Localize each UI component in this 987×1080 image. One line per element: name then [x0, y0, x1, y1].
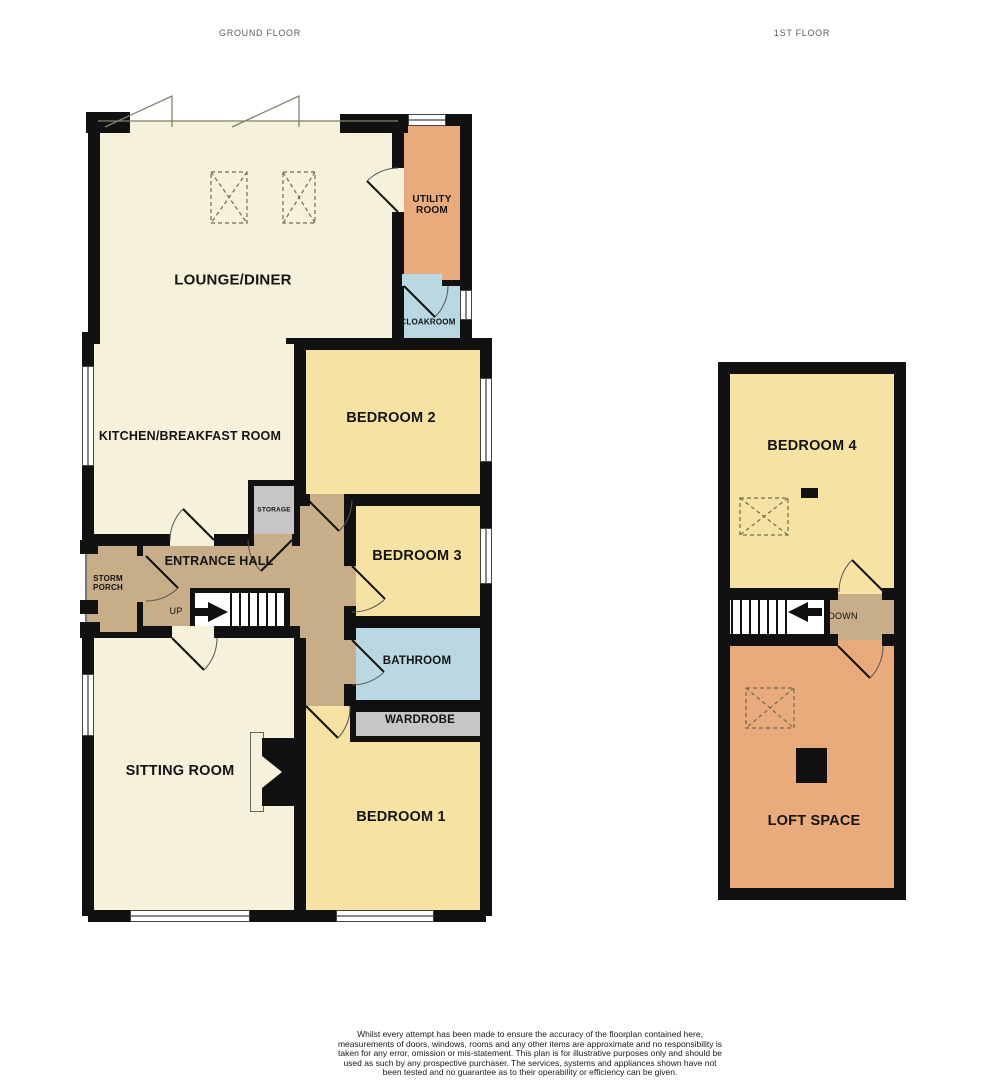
label-bedroom1: BEDROOM 1	[356, 809, 446, 825]
wall-segment	[82, 332, 96, 344]
label-bathroom: BATHROOM	[383, 655, 451, 667]
door-opening	[402, 274, 442, 286]
door-opening	[838, 640, 882, 648]
window	[460, 290, 472, 320]
wall-segment	[340, 114, 408, 133]
door-opening	[172, 626, 214, 638]
wall-segment	[344, 622, 350, 640]
wall-segment	[344, 500, 350, 566]
window	[408, 114, 446, 126]
floorplan: GROUND FLOOR 1ST FLOOR LOUNGE/DINER UTIL…	[0, 0, 987, 1080]
label-entrance-hall: ENTRANCE HALL	[165, 554, 274, 568]
label-utility-room: UTILITY ROOM	[400, 194, 464, 216]
door-opening	[170, 534, 214, 546]
label-bedroom4: BEDROOM 4	[767, 438, 857, 454]
wall-segment	[446, 114, 472, 126]
window	[130, 910, 250, 922]
wall-segment	[300, 638, 306, 700]
label-sitting-room: SITTING ROOM	[126, 763, 235, 779]
label-storage: STORAGE	[257, 507, 290, 514]
disclaimer: Whilst every attempt has been made to en…	[334, 1030, 726, 1080]
wall-segment	[344, 606, 350, 622]
wall-segment	[466, 338, 492, 350]
label-wardrobe: WARDROBE	[385, 714, 455, 726]
wall-corner	[718, 890, 728, 900]
door-opening	[838, 594, 882, 602]
wall-corner	[718, 362, 728, 372]
door-opening	[838, 586, 882, 594]
window	[480, 378, 492, 462]
wall-segment	[300, 500, 310, 506]
label-bedroom3: BEDROOM 3	[372, 548, 462, 564]
ground-floor-title: GROUND FLOOR	[219, 28, 301, 38]
label-lounge-diner: LOUNGE/DINER	[174, 272, 291, 289]
hall-corridor-floor	[300, 632, 350, 700]
room-cloakroom	[398, 280, 466, 344]
fireplace-opening	[262, 756, 282, 788]
label-cloakroom: CLOAKROOM	[400, 318, 455, 327]
door-opening	[137, 556, 149, 602]
label-stairs-up: UP	[170, 606, 183, 616]
wall-corner	[896, 890, 906, 900]
room-bedroom4	[724, 368, 900, 594]
door-opening	[254, 534, 292, 546]
wall-segment	[143, 626, 300, 632]
label-kitchen-breakfast: KITCHEN/BREAKFAST ROOM	[99, 429, 281, 443]
wall-corner	[896, 362, 906, 372]
label-bedroom2: BEDROOM 2	[346, 410, 436, 426]
wall-segment	[80, 622, 100, 638]
door-opening	[306, 694, 344, 706]
first-floor-title: 1ST FLOOR	[774, 28, 830, 38]
label-storm-porch: STORM PORCH	[82, 575, 134, 593]
door-opening	[100, 336, 286, 352]
room-lounge-diner	[94, 120, 398, 344]
window	[336, 910, 434, 922]
door-opening	[310, 494, 344, 506]
label-loft-space: LOFT SPACE	[768, 813, 861, 829]
stair-treads-ground	[230, 593, 286, 627]
door-opening	[838, 632, 882, 640]
stair-treads-first	[731, 600, 791, 634]
porch-stub	[80, 540, 98, 554]
label-stairs-down: DOWN	[828, 611, 857, 621]
chimney-icon	[796, 748, 827, 783]
door-opening	[344, 566, 356, 606]
window	[82, 674, 94, 736]
vent-icon	[801, 488, 818, 498]
disclaimer-text: Whilst every attempt has been made to en…	[334, 1030, 726, 1078]
hall-upper-column-floor	[300, 500, 350, 540]
wall-segment	[86, 112, 130, 133]
porch-stub	[80, 600, 98, 614]
door-opening	[344, 640, 356, 684]
window	[480, 528, 492, 584]
window	[82, 366, 94, 466]
